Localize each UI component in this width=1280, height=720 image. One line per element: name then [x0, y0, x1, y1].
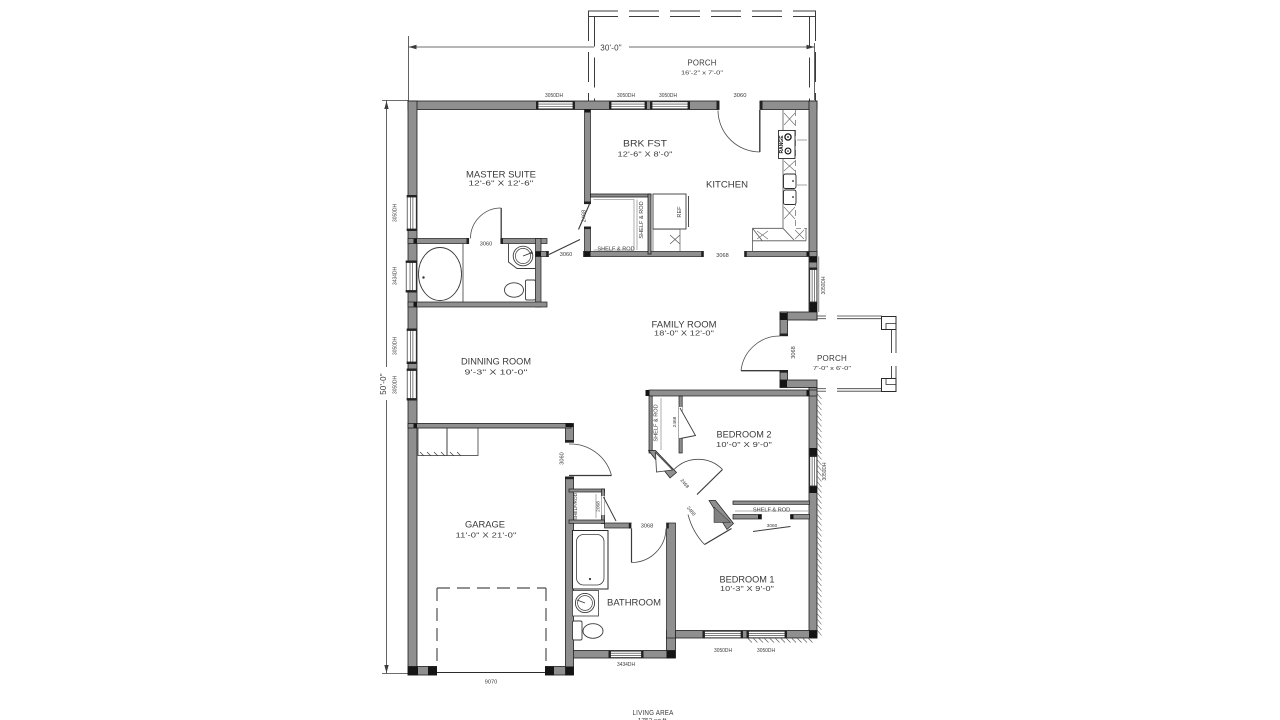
svg-text:12'-6" X 12'-6": 12'-6" X 12'-6" — [469, 181, 535, 188]
svg-text:SHELF & ROD: SHELF & ROD — [639, 201, 645, 238]
svg-text:KITCHEN: KITCHEN — [706, 180, 748, 190]
svg-text:3060: 3060 — [560, 452, 566, 464]
svg-text:SHELF & ROD: SHELF & ROD — [597, 247, 634, 253]
svg-text:GARAGE: GARAGE — [465, 520, 505, 530]
svg-text:BATHROOM: BATHROOM — [607, 598, 661, 608]
svg-text:2468: 2468 — [582, 210, 588, 222]
svg-text:RANGE: RANGE — [779, 135, 785, 154]
svg-text:DINNING ROOM: DINNING ROOM — [461, 357, 531, 367]
svg-text:REF: REF — [677, 206, 683, 218]
svg-text:3050DH: 3050DH — [821, 277, 827, 295]
svg-text:9070: 9070 — [485, 680, 497, 686]
svg-text:PORCH: PORCH — [688, 59, 717, 68]
svg-text:2068: 2068 — [596, 501, 602, 512]
svg-text:BEDROOM 2: BEDROOM 2 — [717, 430, 772, 440]
svg-text:BRK FST: BRK FST — [623, 139, 668, 149]
svg-text:SHELF & ROD: SHELF & ROD — [753, 508, 790, 514]
svg-text:3068: 3068 — [641, 524, 653, 530]
svg-text:LIVING AREA: LIVING AREA — [633, 710, 674, 717]
svg-text:3050DH: 3050DH — [659, 93, 677, 99]
svg-text:3050DH: 3050DH — [822, 463, 828, 481]
svg-text:10'-0" X 9'-0": 10'-0" X 9'-0" — [716, 442, 773, 449]
svg-text:3060: 3060 — [560, 252, 572, 258]
svg-text:18'-0" X 12'-0": 18'-0" X 12'-0" — [654, 331, 715, 338]
svg-text:2468: 2468 — [679, 478, 691, 490]
svg-text:12'-6" X 8'-0": 12'-6" X 8'-0" — [618, 152, 674, 159]
svg-text:3050DH: 3050DH — [393, 204, 399, 222]
svg-text:3434DH: 3434DH — [617, 662, 635, 668]
svg-text:3060: 3060 — [767, 523, 778, 529]
svg-text:2468: 2468 — [672, 416, 678, 427]
svg-text:3050DH: 3050DH — [757, 648, 775, 654]
svg-text:3050DH: 3050DH — [714, 648, 732, 654]
svg-text:10'-3" X 9'-0": 10'-3" X 9'-0" — [720, 586, 775, 593]
svg-text:3050DH: 3050DH — [393, 376, 399, 394]
svg-text:MASTER SUITE: MASTER SUITE — [466, 170, 536, 180]
svg-text:9'-3" X 10'-0": 9'-3" X 10'-0" — [465, 370, 529, 377]
svg-text:3434DH: 3434DH — [393, 267, 399, 285]
svg-text:3060: 3060 — [734, 93, 747, 99]
svg-text:7'-0" x 6'-0": 7'-0" x 6'-0" — [813, 366, 851, 372]
svg-text:11'-0" X 21'-0": 11'-0" X 21'-0" — [456, 533, 518, 540]
svg-text:SHELF/ROD: SHELF/ROD — [573, 492, 579, 520]
svg-text:3050DH: 3050DH — [393, 337, 399, 355]
svg-text:SHELF & ROD: SHELF & ROD — [654, 404, 660, 441]
svg-text:FAMILY ROOM: FAMILY ROOM — [652, 320, 717, 330]
svg-text:BEDROOM 1: BEDROOM 1 — [720, 575, 775, 585]
svg-text:2468: 2468 — [685, 505, 697, 517]
svg-text:30'-0": 30'-0" — [600, 44, 622, 53]
svg-text:PORCH: PORCH — [817, 354, 847, 363]
svg-text:3060: 3060 — [480, 242, 492, 248]
svg-text:3050DH: 3050DH — [617, 93, 635, 99]
svg-text:3068: 3068 — [716, 253, 728, 259]
svg-text:16'-2" x 7'-0": 16'-2" x 7'-0" — [681, 71, 723, 77]
svg-text:50'-0": 50'-0" — [379, 373, 388, 395]
svg-text:3068: 3068 — [791, 346, 797, 358]
svg-text:3050DH: 3050DH — [545, 93, 563, 99]
